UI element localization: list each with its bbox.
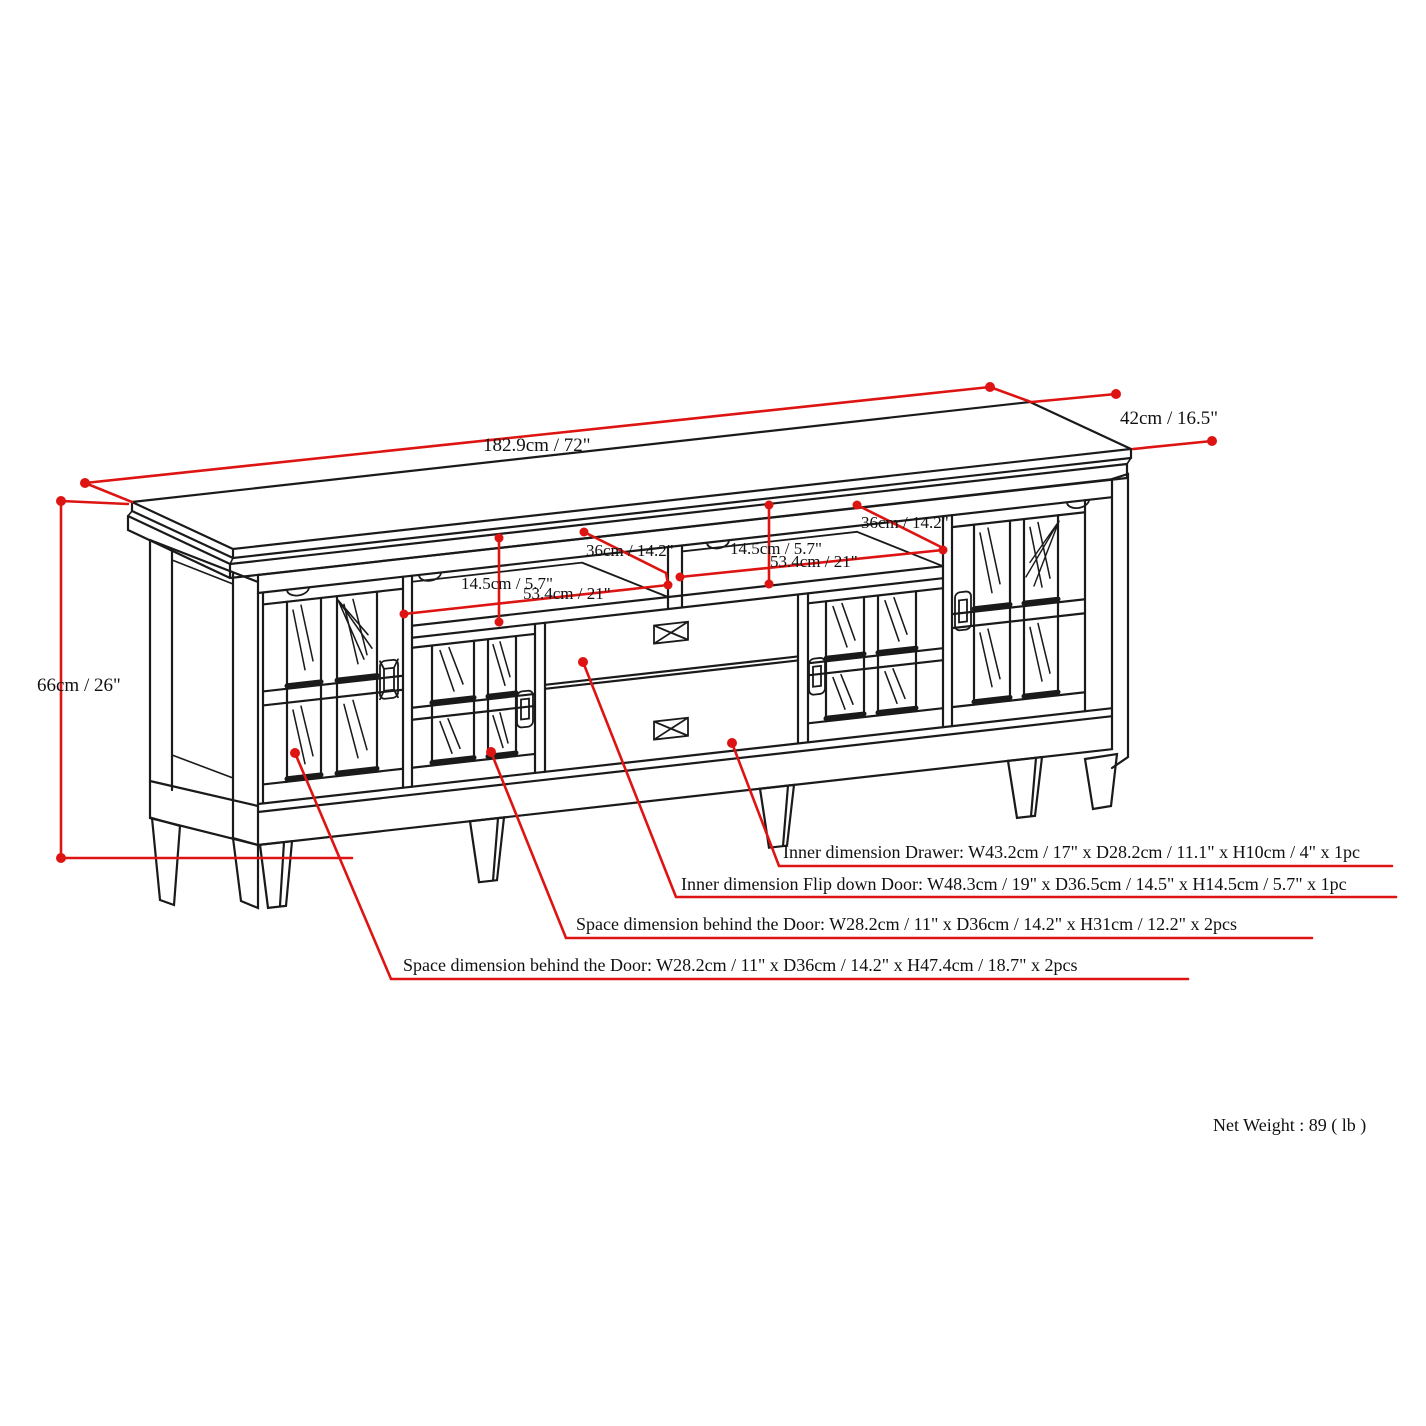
label-left-shelf-width: 53.4cm / 21" xyxy=(523,584,611,603)
annotation-space-tall-door: Space dimension behind the Door: W28.2cm… xyxy=(403,955,1077,975)
annotation-space-small-door: Space dimension behind the Door: W28.2cm… xyxy=(576,914,1237,934)
label-overall-width: 182.9cm / 72" xyxy=(483,435,591,456)
annotation-drawer: Inner dimension Drawer: W43.2cm / 17" x … xyxy=(783,842,1360,862)
tv-stand-line-drawing: 182.9cm / 72" 42cm / 16.5" 66cm / 26" 14… xyxy=(0,0,1426,1426)
labels: 182.9cm / 72" 42cm / 16.5" 66cm / 26" 14… xyxy=(37,408,1366,1136)
net-weight: Net Weight : 89 ( lb ) xyxy=(1213,1115,1366,1136)
dimension-dots xyxy=(56,382,1217,863)
label-right-shelf-depth: 36cm / 14.2" xyxy=(861,513,949,532)
label-right-shelf-width: 53.4cm / 21" xyxy=(770,552,858,571)
label-left-shelf-depth: 36cm / 14.2" xyxy=(586,541,674,560)
label-overall-height: 66cm / 26" xyxy=(37,675,121,696)
annotation-flip-door: Inner dimension Flip down Door: W48.3cm … xyxy=(681,874,1347,894)
dimension-diagram: 182.9cm / 72" 42cm / 16.5" 66cm / 26" 14… xyxy=(0,0,1426,1426)
label-overall-depth: 42cm / 16.5" xyxy=(1120,408,1218,429)
furniture-outline xyxy=(128,402,1131,909)
